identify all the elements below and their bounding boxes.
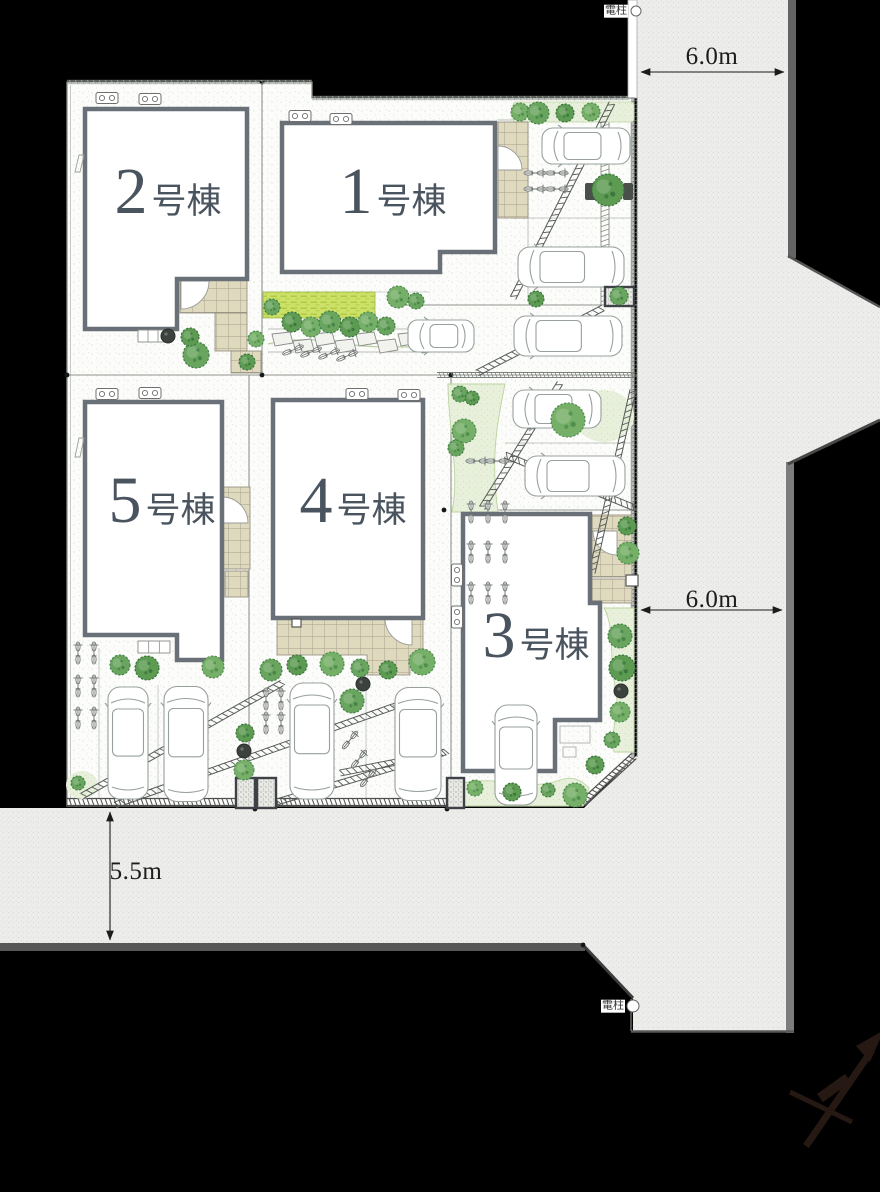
tree-icon [563, 783, 587, 807]
tree-icon [135, 656, 159, 680]
tree-icon [387, 286, 409, 308]
tree-icon [379, 661, 397, 679]
tree-icon [351, 659, 369, 677]
tree-icon [236, 724, 254, 742]
ac-unit-icon [139, 94, 161, 105]
building-1-footprint [282, 123, 495, 272]
tree-icon [340, 689, 364, 713]
car-icon [161, 687, 211, 802]
tree-icon [239, 354, 255, 370]
gate-post [236, 778, 255, 808]
tree-icon [527, 102, 549, 124]
road-right-curb-bottom [786, 462, 794, 1033]
tree-icon [319, 311, 341, 333]
tree-icon [234, 760, 254, 780]
utility-circle-icon [356, 677, 370, 691]
ac-unit-icon [398, 390, 420, 401]
tree-icon [592, 174, 624, 206]
utility-circle-icon [237, 744, 251, 758]
gate-post [257, 778, 276, 808]
tree-icon [511, 103, 529, 121]
tree-icon [604, 732, 620, 748]
tree-icon [551, 403, 585, 437]
tree-icon [586, 756, 604, 774]
tree-icon [617, 542, 639, 564]
tree-icon [248, 331, 264, 347]
car-icon [525, 453, 625, 499]
tree-icon [467, 780, 483, 796]
car-icon [392, 688, 444, 801]
lawn-area [263, 292, 375, 318]
tree-icon [377, 317, 395, 335]
tree-icon [110, 655, 130, 675]
tree-icon [582, 103, 600, 121]
utility-pole-bottom-icon [627, 1000, 639, 1012]
tree-icon [609, 655, 635, 681]
ac-unit-icon [346, 389, 368, 400]
ac-unit-icon [139, 388, 161, 399]
building-5-footprint [85, 402, 222, 660]
meter-box-icon [292, 619, 301, 627]
meter-box-icon [626, 575, 638, 586]
tree-icon [618, 517, 636, 535]
north-arrow-icon [790, 1030, 880, 1146]
tree-icon [287, 655, 307, 675]
tree-icon [610, 287, 628, 305]
tree-icon [301, 317, 321, 337]
ac-unit-icon [289, 111, 311, 122]
tree-icon [320, 652, 344, 676]
utility-pole-bottom-label: 電柱 [601, 1000, 625, 1013]
utility-pole-top-label: 電柱 [604, 5, 628, 18]
building-4-footprint [273, 400, 423, 618]
tree-icon [71, 776, 85, 790]
tree-icon [452, 419, 476, 443]
tree-icon [409, 649, 435, 675]
tree-icon [260, 659, 282, 681]
tree-icon [448, 440, 464, 456]
tree-icon [282, 312, 302, 332]
tree-icon [202, 656, 224, 678]
tree-icon [358, 312, 378, 332]
tree-icon [556, 104, 574, 122]
tree-icon [541, 783, 555, 797]
ac-unit-icon [96, 93, 118, 104]
road-width-top: 6.0m [686, 43, 739, 71]
utility-circle-icon [614, 684, 628, 698]
car-icon [542, 125, 630, 167]
tree-icon [610, 702, 630, 722]
ac-unit-icon [452, 564, 463, 586]
road-right-curb-top [788, 0, 796, 258]
tree-icon [181, 328, 199, 346]
site-plan: 2号棟 1号棟 5号棟 4号棟 3号棟 6.0m 6.0m 5.5m 電柱 電柱 [0, 0, 880, 1192]
gate-post [447, 778, 464, 808]
car-icon [105, 687, 151, 799]
tree-icon [503, 783, 521, 801]
road-bottom-curb [0, 943, 585, 951]
tree-icon [264, 299, 280, 315]
road-width-bottom: 5.5m [110, 858, 163, 886]
tree-icon [528, 291, 544, 307]
road-width-right: 6.0m [686, 586, 739, 614]
ac-unit-icon [330, 114, 352, 125]
car-icon [514, 313, 622, 359]
site-plan-canvas [0, 0, 880, 1192]
step-icon [138, 641, 170, 653]
utility-pole-top-icon [631, 6, 641, 16]
car-icon [408, 317, 474, 355]
tree-icon [608, 624, 632, 648]
car-icon [518, 244, 624, 290]
tree-icon [340, 317, 360, 337]
tree-icon [408, 293, 424, 309]
ac-unit-icon [452, 606, 463, 628]
utility-circle-icon [161, 329, 175, 343]
tree-icon [465, 391, 479, 405]
ac-unit-icon [96, 389, 118, 400]
car-icon [287, 683, 337, 799]
